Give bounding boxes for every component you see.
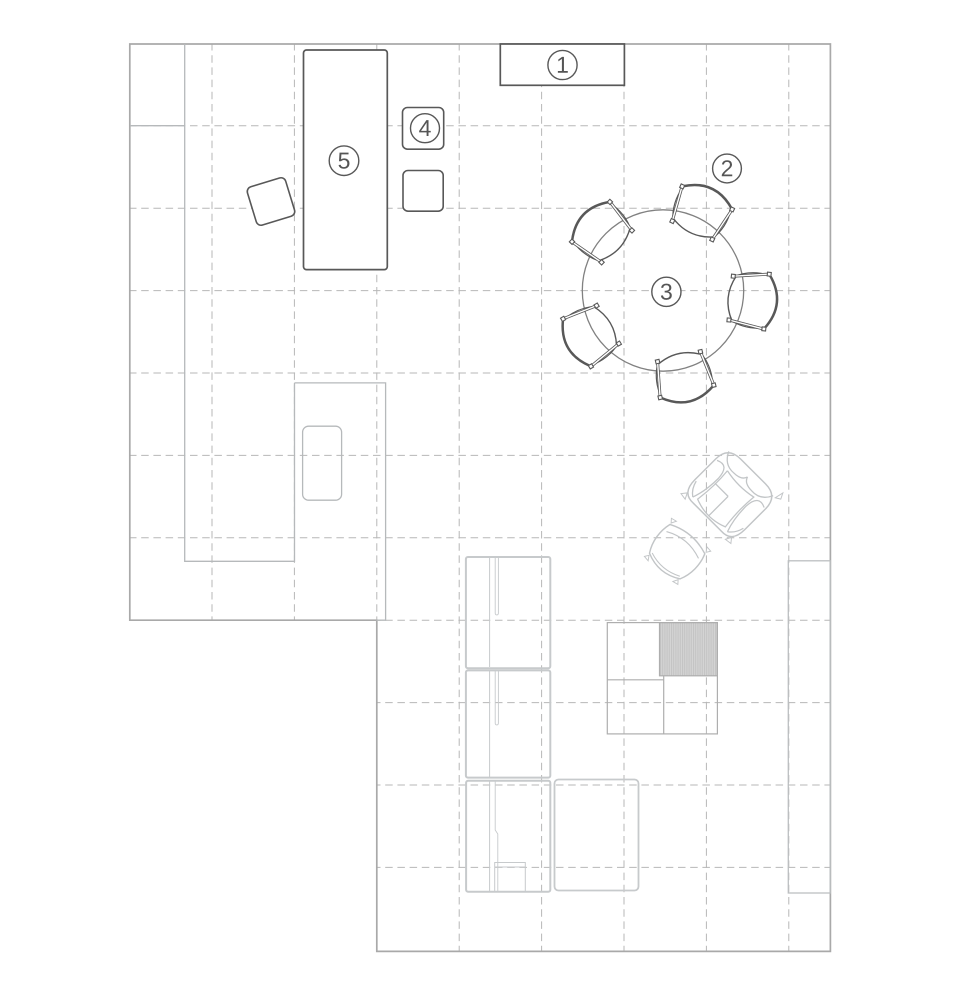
svg-text:4: 4 [419, 115, 432, 141]
svg-text:5: 5 [338, 147, 351, 173]
svg-text:3: 3 [660, 279, 673, 305]
svg-text:2: 2 [721, 155, 734, 181]
svg-text:1: 1 [556, 52, 569, 78]
